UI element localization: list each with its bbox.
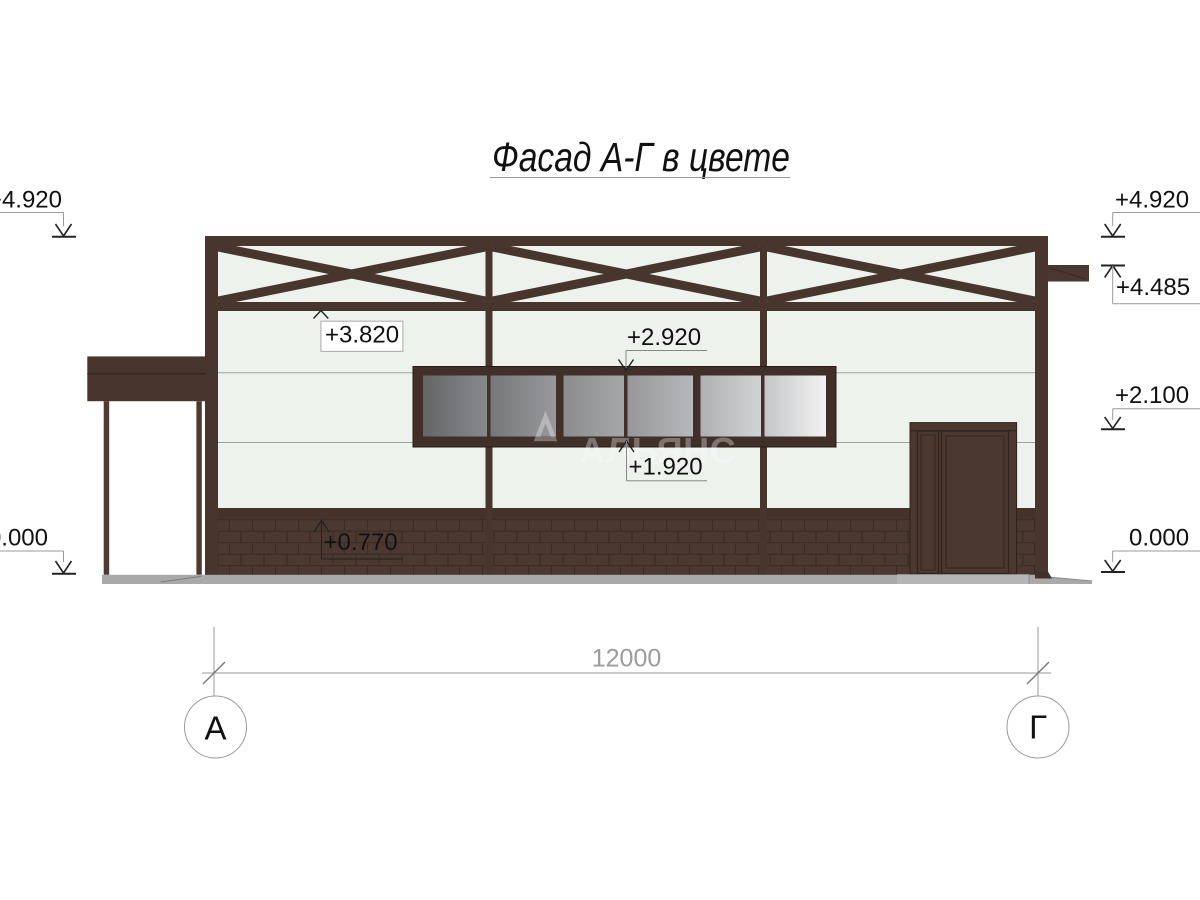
svg-text:+4.920: +4.920 xyxy=(0,187,62,214)
svg-text:+1.920: +1.920 xyxy=(629,454,703,481)
svg-text:0.000: 0.000 xyxy=(1129,525,1189,552)
svg-text:+2.920: +2.920 xyxy=(627,324,701,351)
svg-text:+3.820: +3.820 xyxy=(325,322,399,349)
svg-text:12000: 12000 xyxy=(592,645,662,673)
svg-text:+4.485: +4.485 xyxy=(1116,274,1190,301)
svg-text:+2.100: +2.100 xyxy=(1115,382,1189,409)
svg-text:Фасад А-Г в цвете: Фасад А-Г в цвете xyxy=(492,134,790,180)
svg-text:0.000: 0.000 xyxy=(0,525,48,552)
svg-text:+4.920: +4.920 xyxy=(1115,187,1189,214)
svg-text:А: А xyxy=(204,710,226,747)
svg-text:+0.770: +0.770 xyxy=(324,529,398,556)
svg-text:Г: Г xyxy=(1029,709,1047,746)
